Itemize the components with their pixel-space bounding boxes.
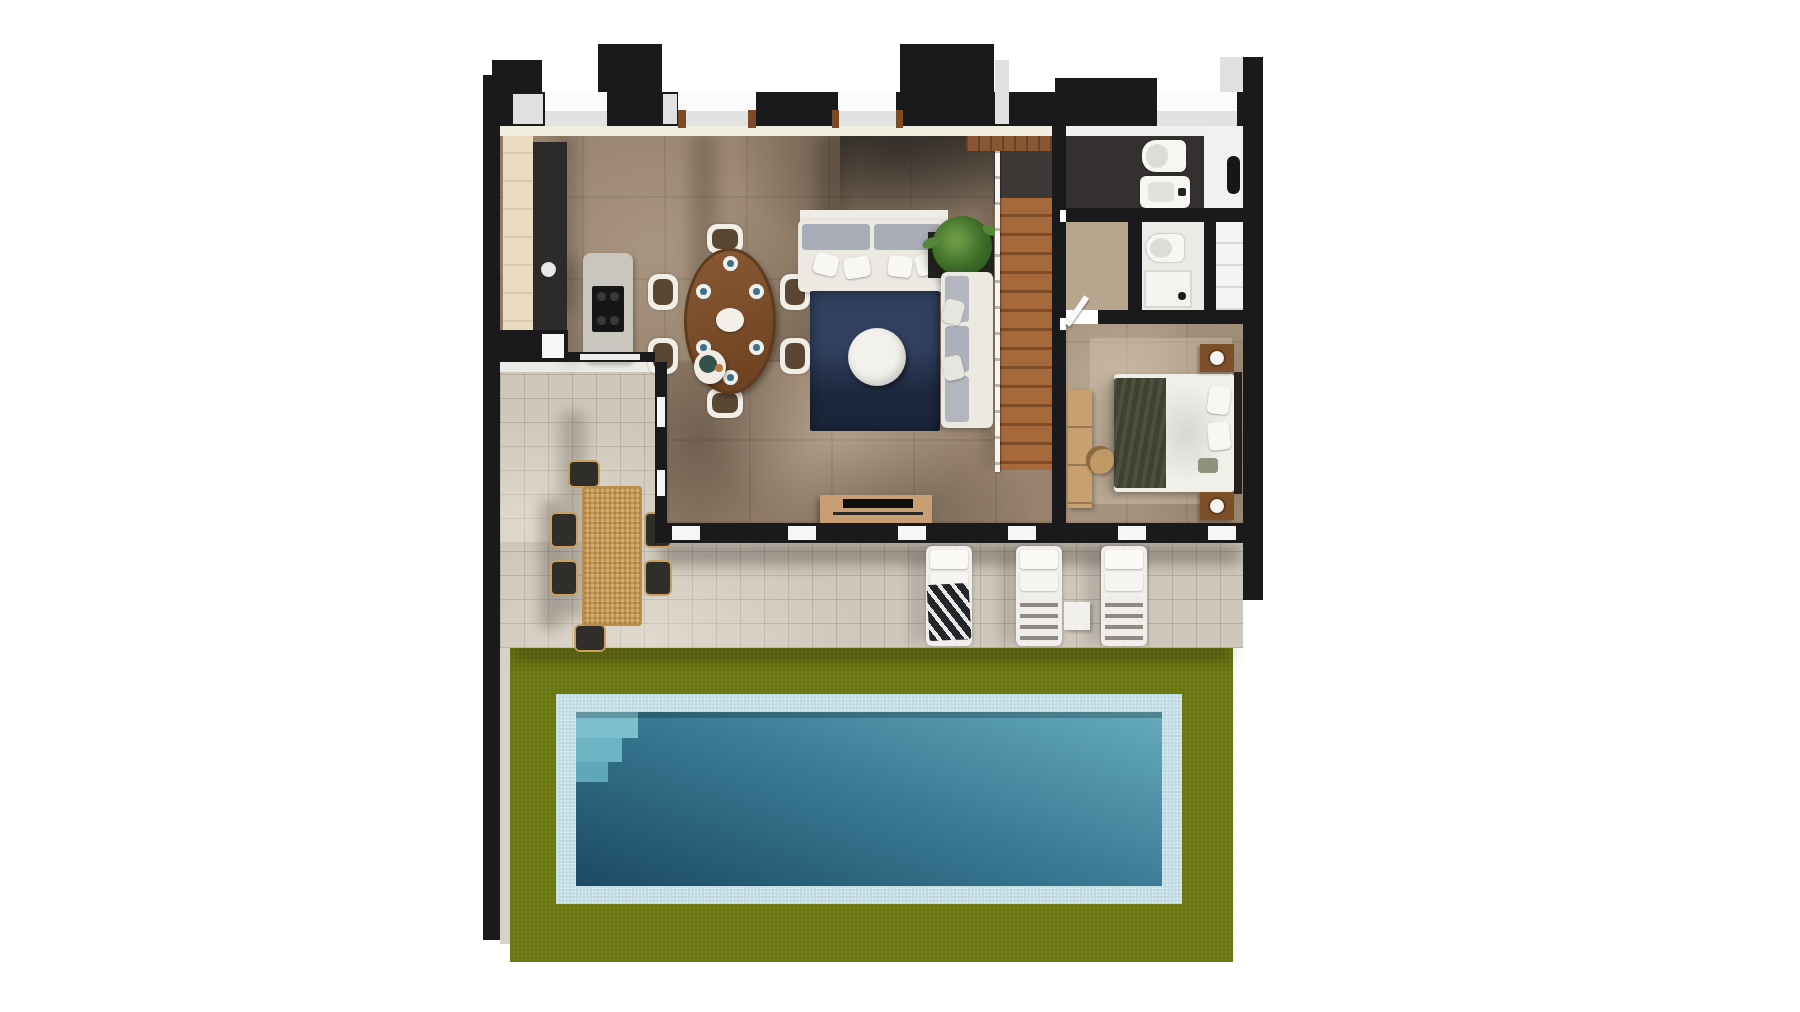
front-door-opening — [838, 92, 896, 126]
wall-tooth — [598, 44, 662, 92]
outdoor-chair — [568, 460, 600, 488]
stair-railing — [995, 150, 1000, 472]
kitchen-back-wall — [503, 126, 533, 362]
sofa-back-cushion — [945, 376, 969, 422]
toilet — [1146, 234, 1184, 262]
throw-pillow — [940, 298, 966, 327]
shower-room-wall — [1128, 222, 1142, 310]
chair-seat — [653, 279, 673, 305]
pool-step-2 — [576, 738, 622, 762]
sink-basin — [1148, 182, 1174, 202]
toilet — [1142, 140, 1186, 172]
tv-soundbar — [833, 512, 923, 515]
wall-divider-right-wing — [1052, 115, 1066, 210]
shower-tray — [1144, 270, 1192, 308]
lounger-slats — [1105, 596, 1143, 642]
bed-pillow — [1206, 385, 1231, 415]
outdoor-chair — [574, 624, 606, 652]
lounger-cushion — [1020, 550, 1058, 569]
kitchen-sink — [541, 262, 556, 277]
wall-tooth — [900, 44, 994, 92]
tv-screen — [843, 499, 913, 508]
garden-wall-face — [500, 600, 510, 944]
side-table-cube — [1064, 602, 1090, 630]
wall-bathrooms-divider — [1066, 208, 1243, 222]
sliding-door-panel — [898, 526, 926, 540]
wall-bedroom-left — [1052, 330, 1066, 523]
throw-pillow — [812, 251, 840, 277]
window — [1157, 92, 1237, 126]
place-setting — [749, 340, 764, 355]
place-setting — [723, 256, 738, 271]
decor-floor-vase — [694, 350, 726, 384]
bathroom-wall-face — [1066, 126, 1204, 136]
sliding-door-panel — [672, 526, 700, 540]
pool-water — [576, 712, 1162, 886]
cooktop-burner — [597, 316, 606, 325]
table-centerpiece — [716, 308, 744, 332]
nightstand — [1200, 344, 1234, 372]
sofa-back-cushion — [802, 224, 870, 250]
sliding-door-panel — [1208, 526, 1236, 540]
wardrobe — [1216, 222, 1243, 310]
sliding-door-panel — [1118, 526, 1146, 540]
window — [545, 92, 607, 126]
bedroom-dresser — [1068, 390, 1092, 508]
lounger-cushion — [1105, 572, 1143, 591]
sink-faucet — [1178, 188, 1186, 196]
zebra-towel — [927, 583, 972, 641]
outdoor-chair — [550, 512, 578, 548]
pool-edge-shadow — [576, 712, 1162, 718]
cooktop-burner — [597, 292, 606, 301]
bed-accent-cushion — [1198, 458, 1218, 473]
cooktop-burner — [610, 316, 619, 325]
terrace-left-top-band — [500, 362, 655, 372]
wall-face — [513, 94, 543, 124]
sliding-door-panel — [788, 526, 816, 540]
door-post-wood — [678, 110, 686, 128]
sun-lounger — [1016, 546, 1062, 646]
place-setting — [749, 284, 764, 299]
chair-seat — [712, 229, 738, 249]
throw-pillow — [887, 254, 914, 278]
door-post-wood — [832, 110, 839, 128]
wall-bedroom-top — [1098, 310, 1243, 324]
place-setting — [723, 370, 738, 385]
bed-blanket-olive — [1114, 378, 1172, 488]
dining-chair — [780, 338, 810, 374]
exterior-wall-right — [1243, 57, 1263, 600]
cooktop — [592, 286, 624, 332]
interior-sill-band — [500, 126, 1056, 136]
lounger-shadow — [912, 550, 924, 644]
wardrobe-wall — [1204, 222, 1216, 310]
toilet-bowl — [1146, 144, 1168, 168]
villa-floor-plan — [0, 0, 1800, 1012]
outdoor-chair — [550, 560, 578, 596]
lounger-slats — [1020, 596, 1058, 642]
throw-pillow — [843, 255, 872, 280]
wall-living-bottom — [655, 523, 1243, 543]
wall-face — [663, 94, 677, 124]
staircase — [1000, 198, 1052, 470]
lounger-shadow — [1002, 550, 1014, 644]
shower-drain — [1178, 292, 1186, 300]
chair-seat — [712, 393, 738, 413]
dining-chair — [648, 274, 678, 310]
double-bed — [1114, 374, 1234, 492]
wall-divider-right-wing — [1052, 222, 1066, 318]
house-shadow-on-lawn — [510, 646, 1233, 660]
door-post-wood — [896, 110, 903, 128]
nightstand — [1200, 492, 1234, 520]
glass-door-panel — [657, 397, 665, 427]
bed-pillow — [1207, 421, 1232, 451]
glass-door-panel — [657, 470, 665, 496]
exterior-wall-left — [483, 75, 500, 940]
coffee-table-round — [848, 328, 906, 386]
bedside-lamp — [1210, 499, 1224, 513]
outdoor-dining-table — [582, 486, 642, 626]
place-setting — [696, 284, 711, 299]
sofa-vertical — [941, 272, 993, 428]
toilet-bowl — [1150, 238, 1172, 258]
pool-step-3 — [576, 762, 608, 782]
lounger-cushion — [1105, 550, 1143, 569]
door-post-wood — [748, 110, 756, 128]
cooktop-burner — [610, 292, 619, 301]
vase-plant-top — [699, 355, 717, 373]
kitchen-terrace-door — [542, 334, 564, 358]
vase-accent — [715, 364, 723, 372]
window — [678, 92, 756, 126]
glass-panel — [580, 354, 640, 360]
wall-terrace-glass-left — [655, 362, 667, 523]
wall-tooth — [492, 60, 542, 92]
shower-fixture-dark — [1227, 156, 1240, 194]
outdoor-chair — [644, 560, 672, 596]
sliding-door-panel — [1008, 526, 1036, 540]
hallway-floor — [1066, 222, 1128, 310]
chair-seat — [785, 343, 805, 369]
rattan-chair — [1086, 446, 1114, 474]
wall-face — [995, 60, 1009, 124]
wall-tooth — [1055, 78, 1157, 92]
sofa-horizontal — [798, 220, 946, 292]
headboard — [1234, 372, 1242, 494]
bedside-lamp — [1210, 351, 1224, 365]
kitchen-counter — [533, 142, 567, 362]
lounger-cushion — [930, 550, 968, 569]
lounger-cushion — [1020, 572, 1058, 591]
sun-lounger — [1101, 546, 1147, 646]
